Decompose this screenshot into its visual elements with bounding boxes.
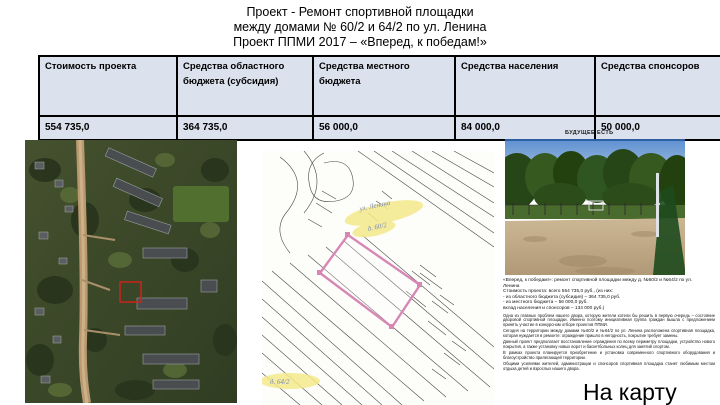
value-sponsor-funds: 50 000,0 (595, 116, 720, 140)
slide-title-line-3: Проект ППМИ 2017 – «Вперед, к победам!» (0, 35, 720, 50)
funding-table-value-row: 554 735,0 364 735,0 56 000,0 84 000,0 50… (39, 116, 720, 140)
funding-table: Стоимость проекта Средства областного бю… (38, 55, 720, 141)
header-population-funds: Средства населения (455, 56, 595, 116)
desc-line-1: «Вперед, к победам!»: ремонт спортивной … (503, 278, 715, 284)
value-project-cost: 554 735,0 (39, 116, 177, 140)
satellite-map-image (25, 140, 237, 403)
header-project-cost: Стоимость проекта (39, 56, 177, 116)
map-link[interactable]: На карту (583, 380, 715, 405)
slide-title-line-2: между домами № 60/2 и 64/2 по ул. Ленина (0, 20, 720, 35)
future-est-label: БУДУЩЕЕ ЕСТЬ (565, 130, 613, 136)
header-sponsor-funds: Средства спонсоров (595, 56, 720, 116)
slide-title: Проект - Ремонт спортивной площадки межд… (0, 5, 720, 50)
funding-table-header-row: Стоимость проекта Средства областного бю… (39, 56, 720, 116)
project-description: «Вперед, к победам!»: ремонт спортивной … (503, 278, 715, 371)
desc-line-6: вклад населения и спонсоров – 134 000 ру… (503, 306, 715, 312)
sat-green-field (173, 186, 229, 222)
desc-paragraph-5: Общими усилиями жителей, администрации и… (503, 362, 715, 371)
value-regional-budget: 364 735,0 (177, 116, 313, 140)
desc-paragraph-3: Данный проект предполагает восстановлени… (503, 340, 715, 349)
desc-paragraph-2: Сегодня на территории между домами №60/2… (503, 329, 715, 338)
photo-sports-ground (505, 139, 685, 275)
desc-paragraph-4: В рамках проекта планируется приобретени… (503, 351, 715, 360)
plan-house-bottom-annotation: д. 64/2 (270, 378, 290, 386)
site-plan-image: ул. Ленина д. 60/2 д. 64/2 (262, 151, 494, 405)
header-local-budget: Средства местного бюджета (313, 56, 455, 116)
header-regional-budget: Средства областного бюджета (субсидия) (177, 56, 313, 116)
value-local-budget: 56 000,0 (313, 116, 455, 140)
desc-paragraph-1: Одна из главных проблем нашего двора, ко… (503, 314, 715, 328)
slide-title-line-1: Проект - Ремонт спортивной площадки (0, 5, 720, 20)
